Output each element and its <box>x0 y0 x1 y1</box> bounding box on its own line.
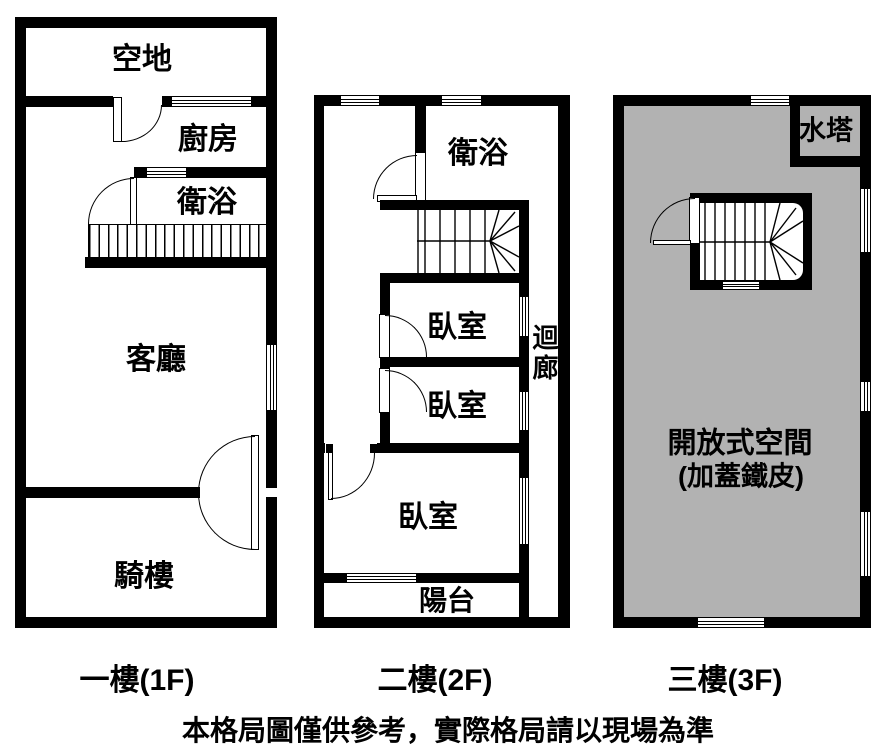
f2-top-window-2 <box>441 95 482 106</box>
f2-corridor-window-3 <box>519 477 529 545</box>
f1-entry-door-jamb <box>266 488 277 497</box>
f3-open-space-fill <box>624 106 860 617</box>
f1-room-label-kitchen: 廚房 <box>178 125 238 155</box>
f2-top-window-1 <box>340 95 380 106</box>
f2-bath-wall-bottom <box>380 200 529 210</box>
f2-bed3-door-hinge-right <box>370 444 377 453</box>
f1-room-label-yard: 空地 <box>112 45 172 75</box>
f2-room-label-balcony: 陽台 <box>419 587 475 615</box>
caption-floor-3: 三樓(3F) <box>668 655 783 699</box>
f3-bottom-window <box>697 617 765 628</box>
f1-entry-door-arc <box>198 436 255 550</box>
f2-stairs <box>417 210 519 273</box>
f1-living-window <box>266 344 277 411</box>
f2-room-label-corridor: 迴廊 <box>531 324 557 384</box>
f1-wall-stairs <box>85 257 277 268</box>
f2-bed3-door-arc <box>331 453 375 499</box>
f2-corridor-window-1 <box>519 296 529 337</box>
f3-watertower-wall-bottom <box>790 156 871 167</box>
caption-floor-1: 一樓(1F) <box>80 655 195 699</box>
f3-top-window <box>750 95 790 106</box>
f2-room-label-bed2: 臥室 <box>427 392 487 422</box>
f2-bed1-door-arc <box>385 315 427 357</box>
f2-room-label-bath: 衛浴 <box>448 139 508 169</box>
f3-right-window-3 <box>860 511 871 577</box>
f3-wall-top <box>613 95 871 106</box>
f3-right-window-1 <box>860 188 871 253</box>
f2-balcony-window <box>346 573 417 583</box>
f2-wall-left <box>314 95 324 628</box>
f1-room-label-living: 客廳 <box>126 345 186 375</box>
f3-stairbox-interior <box>700 203 803 280</box>
f1-stairs <box>88 224 266 257</box>
f2-corridor-window-2 <box>519 391 529 431</box>
f3-room-label-openspace: 開放式空間 <box>667 430 812 459</box>
f1-room-label-bath: 衛浴 <box>177 188 237 218</box>
f2-stairs-wall-bottom <box>380 273 529 283</box>
f1-room-label-arcade: 騎樓 <box>114 562 174 592</box>
f1-kitchen-door-arc <box>122 105 162 142</box>
f1-bath-door-arc <box>88 178 134 224</box>
f3-room-label-openspace-sub: (加蓋鐵皮) <box>678 464 804 491</box>
f2-bed1-wall-bottom <box>380 357 529 367</box>
f2-bath-door-arc <box>373 155 417 199</box>
f3-room-label-watertower: 水塔 <box>799 118 853 145</box>
f1-wall-top <box>15 17 277 28</box>
f3-stairbox-bottom-opening <box>722 281 760 290</box>
f1-wall-arcade <box>15 487 200 498</box>
f3-right-window-2 <box>860 381 871 412</box>
caption-floor-2: 二樓(2F) <box>378 655 493 699</box>
floor-plan-canvas: 空地 廚房 衛浴 客廳 騎樓 衛浴 臥室 <box>0 0 889 750</box>
f1-wall-left <box>15 17 26 628</box>
f1-kitchen-door-leaf <box>113 97 122 142</box>
f2-room-label-bed3: 臥室 <box>398 503 458 533</box>
f2-room-label-bed1: 臥室 <box>427 313 487 343</box>
f3-wall-left <box>613 95 624 628</box>
f3-stairs <box>700 203 803 280</box>
f1-wall-bottom <box>15 617 277 628</box>
f2-wall-right <box>558 95 570 628</box>
f2-wall-bottom <box>314 617 570 628</box>
disclaimer-text: 本格局圖僅供參考，實際格局請以現場為準 <box>182 709 714 749</box>
f1-wall-right <box>266 17 277 628</box>
f2-bed2-door-arc <box>385 370 427 412</box>
f1-bath-window <box>146 167 187 178</box>
f1-kitchen-window <box>171 96 252 107</box>
